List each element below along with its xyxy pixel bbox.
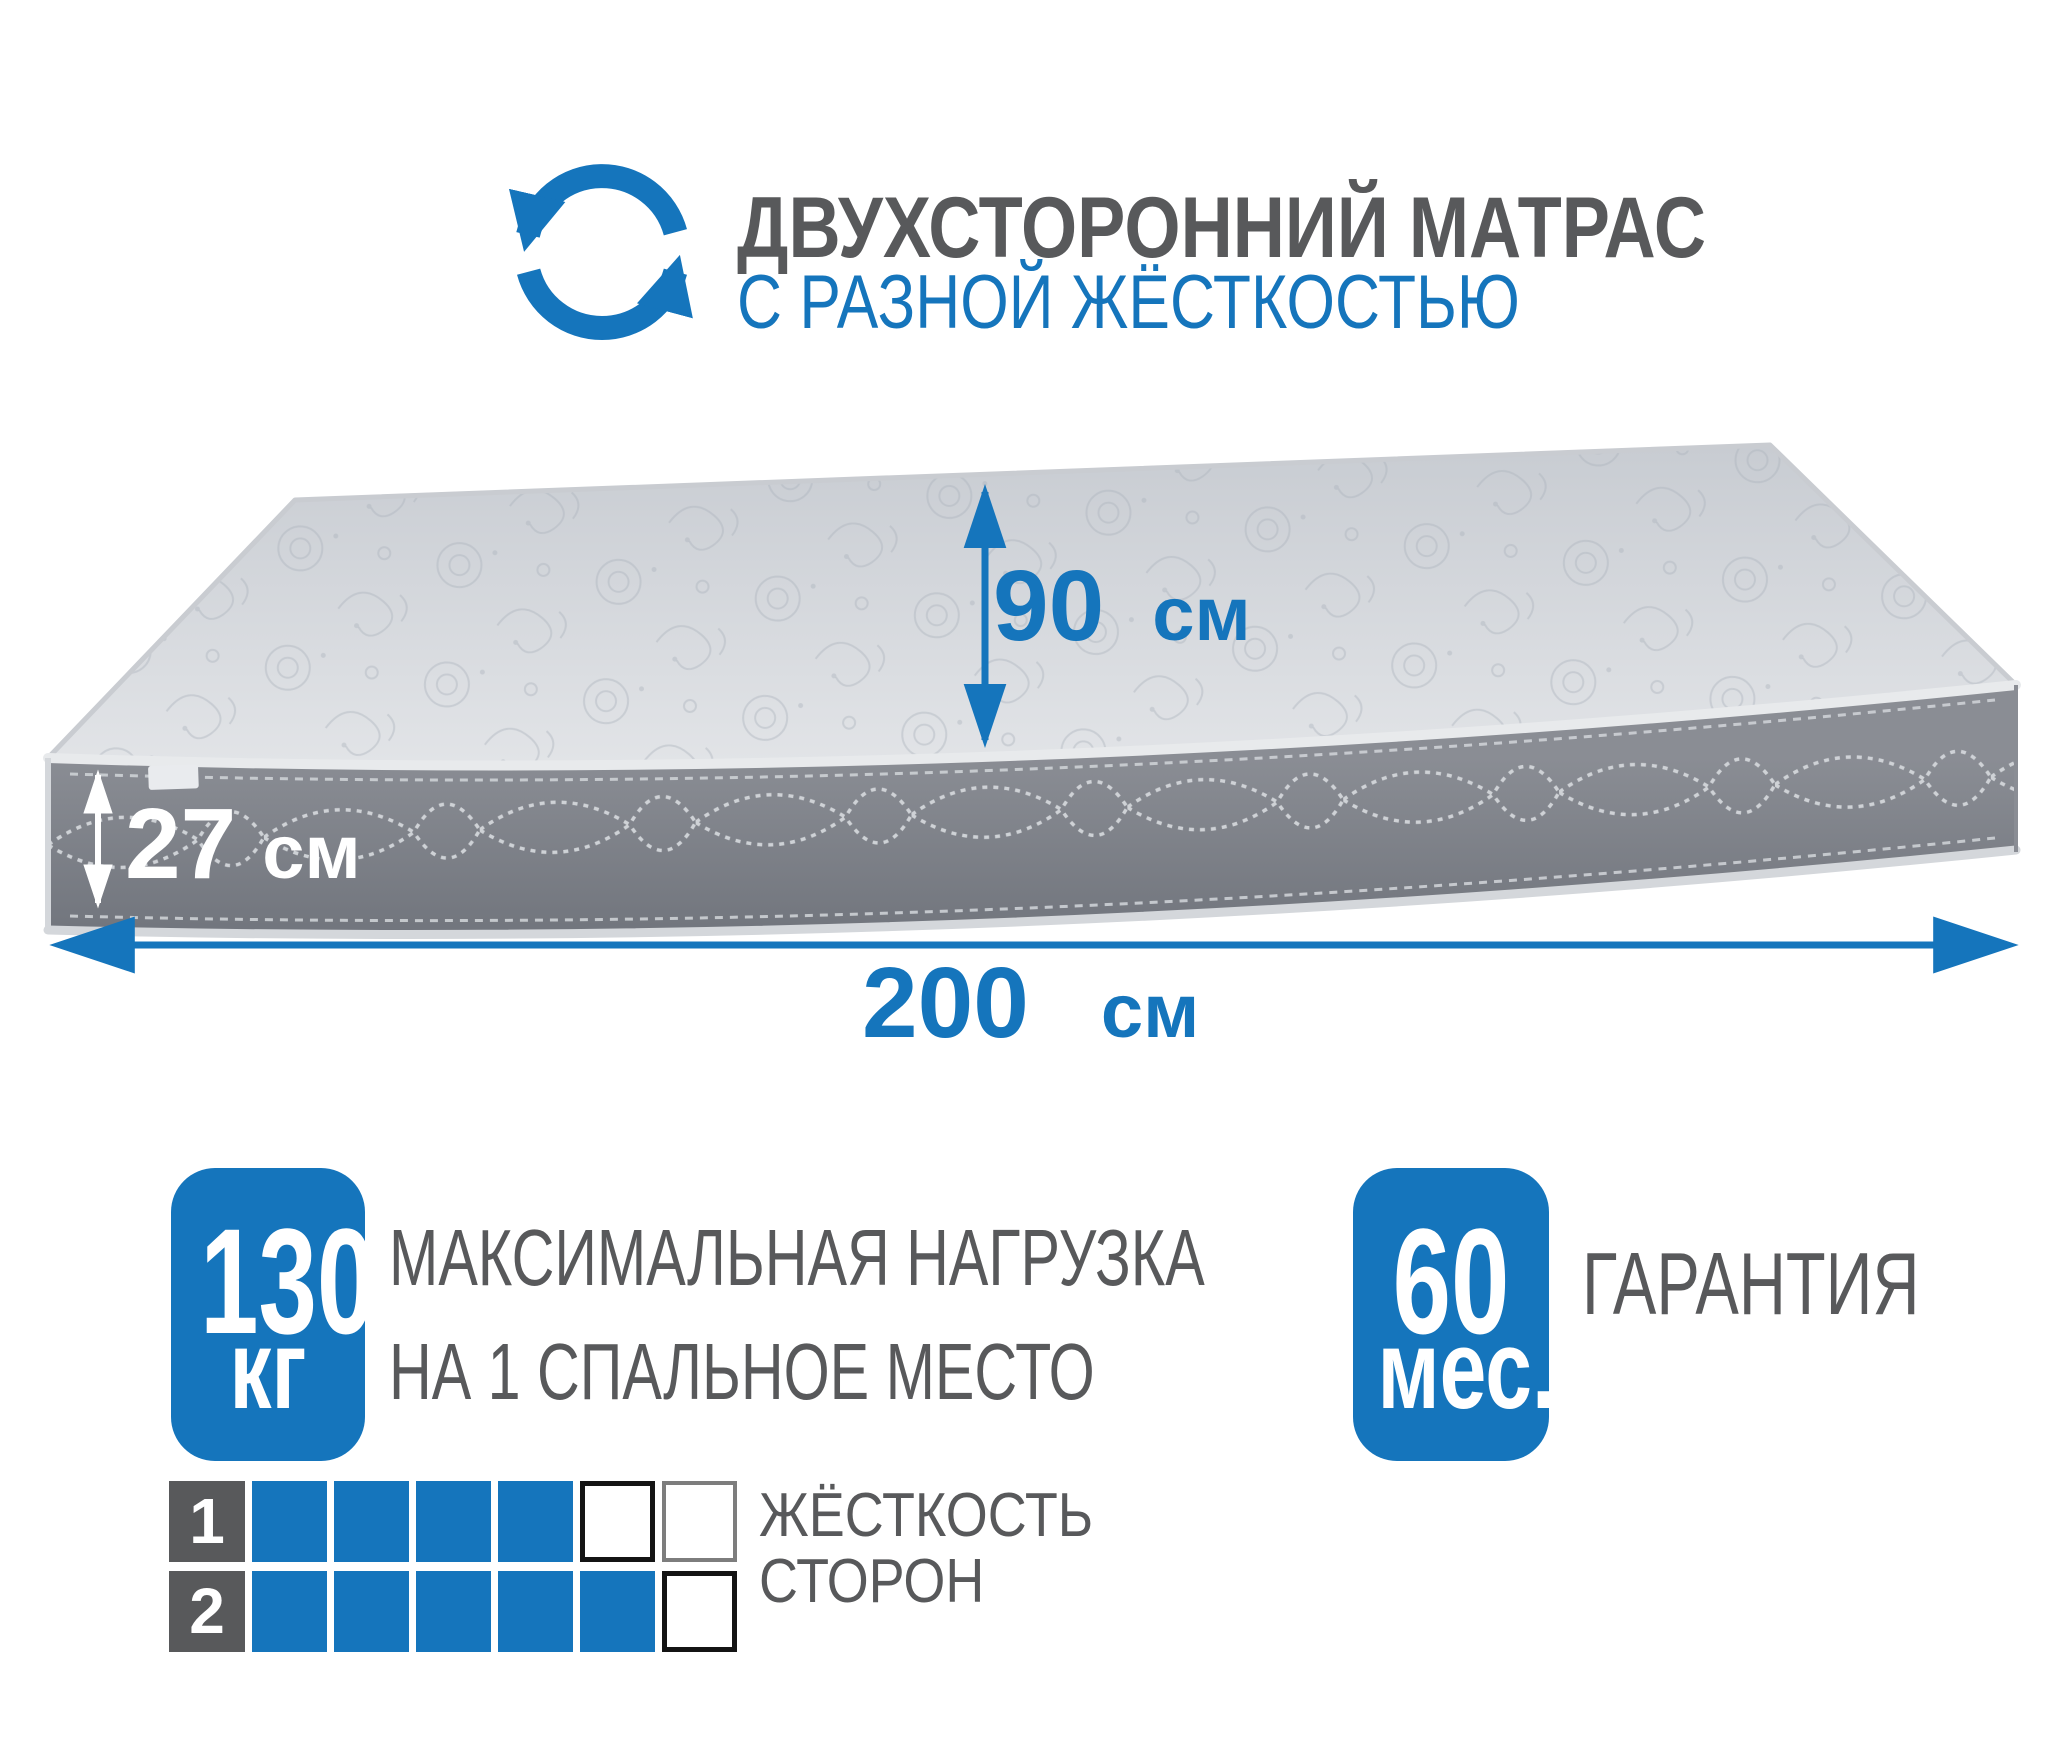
max-load-label-line1: МАКСИМАЛЬНАЯ НАГРУЗКА xyxy=(389,1201,1205,1315)
page-subtitle: С РАЗНОЙ ЖЁСТКОСТЬЮ xyxy=(737,265,1692,341)
firmness-cell xyxy=(252,1571,327,1652)
max-load-unit: кг xyxy=(195,1314,341,1426)
page-title: ДВУХСТОРОННИЙ МАТРАС xyxy=(737,185,1891,271)
warranty-unit: мес. xyxy=(1378,1314,1525,1426)
firmness-cell xyxy=(416,1571,491,1652)
care-tag xyxy=(148,764,199,790)
thickness-value: 27 xyxy=(125,794,236,894)
max-load-label: МАКСИМАЛЬНАЯ НАГРУЗКА НА 1 СПАЛЬНОЕ МЕСТ… xyxy=(389,1201,1491,1429)
warranty-label-text: ГАРАНТИЯ xyxy=(1582,1240,1919,1328)
warranty-badge: 60 мес. xyxy=(1353,1168,1549,1461)
length-value: 200 xyxy=(862,953,1029,1053)
page-subtitle-text: С РАЗНОЙ ЖЁСТКОСТЬЮ xyxy=(737,265,1520,341)
thickness-unit: см xyxy=(262,815,361,891)
firmness-cell xyxy=(580,1571,655,1652)
firmness-cell xyxy=(498,1571,573,1652)
height-unit: см xyxy=(1152,577,1251,653)
thickness-dimension-label: 27 см xyxy=(125,794,361,894)
firmness-chart: 12 xyxy=(169,1481,737,1661)
firmness-cell xyxy=(498,1481,573,1562)
warranty-label: ГАРАНТИЯ xyxy=(1582,1240,2038,1328)
max-load-badge: 130 кг xyxy=(171,1168,365,1461)
firmness-row: 1 xyxy=(169,1481,737,1562)
firmness-cell xyxy=(334,1481,409,1562)
firmness-side-number: 1 xyxy=(169,1481,245,1562)
page-title-text: ДВУХСТОРОННИЙ МАТРАС xyxy=(737,185,1706,271)
firmness-label-line1: ЖЁСТКОСТЬ xyxy=(759,1483,1093,1549)
height-value: 90 xyxy=(993,556,1104,656)
firmness-cell xyxy=(662,1571,737,1652)
rotate-arrows-icon xyxy=(528,176,675,328)
firmness-cell xyxy=(416,1481,491,1562)
mattress-infographic: ДВУХСТОРОННИЙ МАТРАС С РАЗНОЙ ЖЁСТКОСТЬЮ… xyxy=(0,0,2048,1757)
firmness-cell xyxy=(580,1481,655,1562)
max-load-label-line2: НА 1 СПАЛЬНОЕ МЕСТО xyxy=(389,1315,1095,1429)
height-dimension-label: 90 см xyxy=(993,556,1251,656)
firmness-label-line2: СТОРОН xyxy=(759,1549,984,1615)
firmness-chart-label: ЖЁСТКОСТЬ СТОРОН xyxy=(759,1483,1143,1615)
firmness-side-number: 2 xyxy=(169,1571,245,1652)
firmness-cell xyxy=(662,1481,737,1562)
firmness-cell xyxy=(334,1571,409,1652)
firmness-cell xyxy=(252,1481,327,1562)
length-unit: см xyxy=(1101,974,1200,1050)
length-dimension-label: 200 см xyxy=(862,953,1199,1053)
firmness-row: 2 xyxy=(169,1571,737,1652)
